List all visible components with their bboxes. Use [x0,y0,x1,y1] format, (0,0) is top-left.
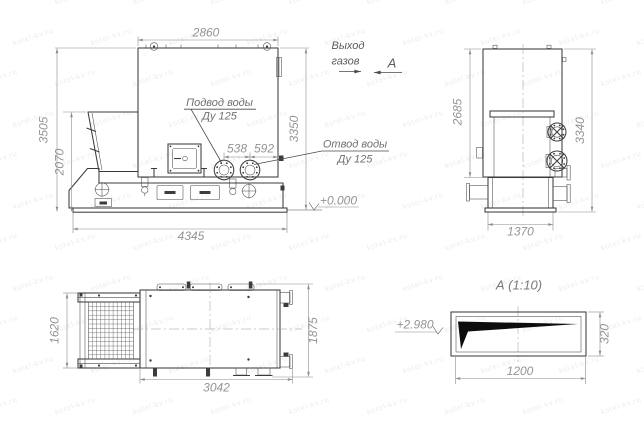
valve-icon [546,151,567,171]
top-view: 1620 1875 3042 [48,282,321,395]
water-outlet-label: Отвод воды [323,139,387,151]
side-bracket [277,58,282,77]
dim-3042: 3042 [203,381,230,395]
detail-elevation-mark: +2.980 [395,318,443,335]
dim-2070: 2070 [53,148,67,176]
detail-view-a: А (1:10) +2.980 320 1200 [395,278,612,385]
dim-2860: 2860 [192,26,220,40]
dim-2685: 2685 [451,98,465,126]
gas-exit-label-1: Выход [331,40,364,52]
dim-4345: 4345 [178,229,205,243]
access-door [168,144,201,173]
elevation-2980: +2.980 [396,318,433,332]
side-view: +0.000 2860 3505 2070 3350 [37,26,403,244]
water-inlet-label: Подвод воды [186,97,253,109]
elevation-zero: +0.000 [320,194,357,208]
dim-1875: 1875 [306,317,320,344]
water-inlet-dn-label: Ду 125 [200,111,238,123]
base-frame [69,156,287,213]
section-a-arrow: А [374,56,402,73]
pipe-stub [477,148,571,181]
fuel-hopper [87,112,139,172]
dim-1620: 1620 [48,317,62,344]
dim-592: 592 [254,142,274,156]
flue-duct-outline [451,312,586,356]
side-view-dimensions: 2860 3505 2070 3350 538 592 43 [37,26,310,244]
dim-1370: 1370 [507,225,534,239]
front-view: 2685 3340 1370 [451,44,597,239]
water-outlet-dn-label: Ду 125 [336,154,374,166]
top-hatches [157,282,254,291]
drain-fitting [142,178,237,197]
top-bottom-fittings [153,368,273,377]
dim-3340: 3340 [573,117,587,144]
dim-538: 538 [227,142,247,156]
gas-exit-callout: Выход газов [331,40,364,72]
dim-1200: 1200 [507,364,534,378]
top-right-stubs [280,291,292,369]
ground-level-mark: +0.000 [287,194,359,211]
drawing-sheet: kotel-kv.rukotel-kv.rukotel-kv.rukotel-k… [0,0,644,430]
gas-exit-label-2: газов [331,56,359,68]
hopper-grate [78,293,140,368]
dim-320: 320 [598,324,612,344]
dim-3505: 3505 [37,116,51,143]
eyebolt-icon [150,43,271,51]
boiler-technical-drawing: +0.000 2860 3505 2070 3350 [0,0,644,430]
water-outlet-callout: Отвод воды Ду 125 [254,139,389,166]
front-opening [490,111,554,177]
front-base [467,178,571,213]
section-letter: А [387,56,397,71]
dim-3350: 3350 [287,115,301,142]
detail-title: А (1:10) [495,278,542,293]
